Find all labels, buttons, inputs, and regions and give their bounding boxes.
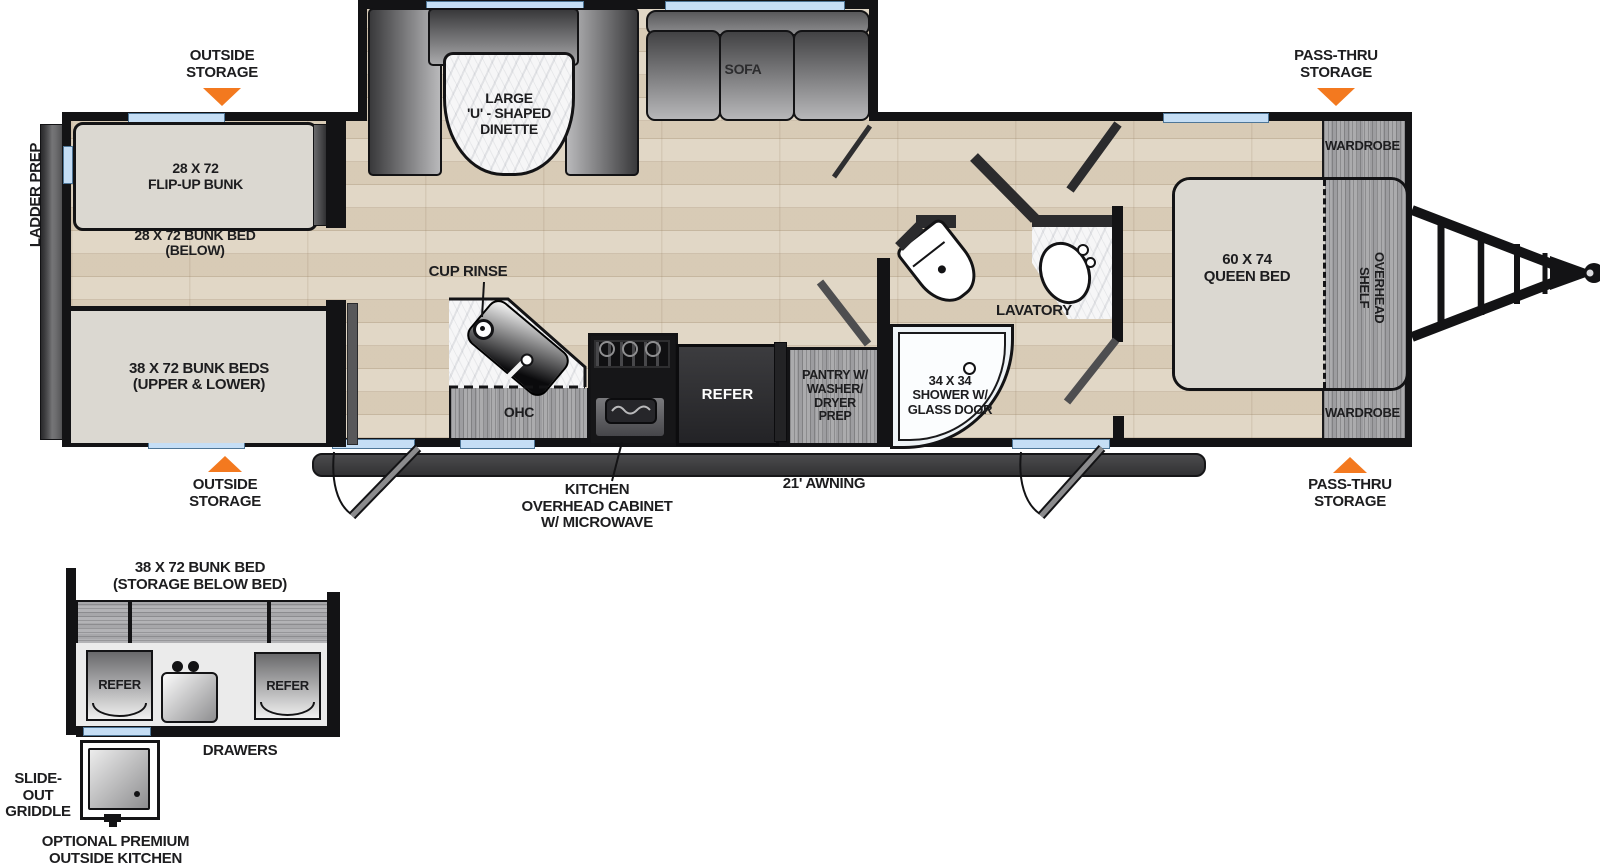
awning-label: 21' AWNING xyxy=(754,476,894,494)
outside-refer-right-label: REFER xyxy=(266,679,309,693)
storage-arrow-icon xyxy=(203,88,241,106)
toilet-seat-line xyxy=(912,241,945,267)
ladder-prep-label: LADDER PREP xyxy=(28,115,48,275)
pantry: PANTRY W/ WASHER/ DRYER PREP xyxy=(787,347,883,446)
awning-bar xyxy=(312,453,1206,477)
flip-up-bunk-label: 28 X 72 FLIP-UP BUNK xyxy=(148,161,243,192)
inset-wall xyxy=(327,592,340,737)
outside-refer-left: REFER xyxy=(86,650,153,721)
outside-refer-right: REFER xyxy=(254,652,321,720)
pass-thru-top-label: PASS-THRU STORAGE xyxy=(1276,48,1396,84)
wall xyxy=(326,300,346,447)
shower-label: 34 X 34 SHOWER W/ GLASS DOOR xyxy=(893,374,1007,428)
queen-bed-label: 60 X 74 QUEEN BED xyxy=(1180,252,1314,290)
inset-bunk-strip xyxy=(76,600,331,647)
cup-rinse-fixture xyxy=(473,319,494,340)
inset-strip-divider xyxy=(128,600,132,643)
inset-strip-divider xyxy=(267,600,271,643)
flip-up-bunk: 28 X 72 FLIP-UP BUNK xyxy=(73,122,318,231)
outside-kitchen-title: 38 X 72 BUNK BED (STORAGE BELOW BED) xyxy=(100,560,300,596)
hitch-coupler-icon xyxy=(1587,270,1594,277)
pantry-label: PANTRY W/ WASHER/ DRYER PREP xyxy=(802,369,868,424)
lavatory-label: LAVATORY xyxy=(972,303,1096,321)
griddle-label: SLIDE-OUT GRIDDLE xyxy=(0,771,76,807)
outside-faucet-dot xyxy=(188,661,199,672)
griddle-knob xyxy=(134,791,140,797)
wall xyxy=(1113,416,1124,442)
griddle xyxy=(88,748,150,810)
outside-storage-bottom-label: OUTSIDE STORAGE xyxy=(165,477,285,513)
window xyxy=(63,146,73,184)
kitchen-ohc-label: KITCHEN OVERHEAD CABINET W/ MICROWAVE xyxy=(517,482,677,534)
storage-arrow-icon xyxy=(208,456,242,472)
storage-arrow-icon xyxy=(1317,88,1355,106)
bunk-below-label: 28 X 72 BUNK BED (BELOW) xyxy=(95,228,295,264)
refer-curve xyxy=(92,703,147,717)
faucet-dot xyxy=(1085,257,1096,268)
cup-rinse-label: CUP RINSE xyxy=(408,264,528,282)
refer-curve xyxy=(260,702,315,716)
stove xyxy=(588,333,678,446)
cabinet-divider xyxy=(774,342,787,442)
wall xyxy=(326,112,346,228)
bunk-beds-room: 38 X 72 BUNK BEDS (UPPER & LOWER) xyxy=(71,306,327,443)
hitch-coupler-icon xyxy=(1584,263,1600,283)
wall xyxy=(877,258,890,444)
wardrobe-bottom-label: WARDROBE xyxy=(1322,406,1403,422)
bed-shelf-divider xyxy=(1323,180,1326,388)
window xyxy=(1163,113,1269,123)
outside-refer-left-label: REFER xyxy=(98,678,141,692)
griddle-tab xyxy=(109,822,117,827)
outside-faucet-dot xyxy=(172,661,183,672)
wall xyxy=(1032,215,1120,227)
sofa-label: SOFA xyxy=(698,62,788,80)
bunk-beds-label: 38 X 72 BUNK BEDS (UPPER & LOWER) xyxy=(129,361,269,394)
pass-thru-bottom-label: PASS-THRU STORAGE xyxy=(1290,477,1410,513)
inset-wall xyxy=(66,568,76,735)
refrigerator: REFER xyxy=(676,344,779,446)
sofa-cushion xyxy=(793,30,870,121)
ohc-label: OHC xyxy=(504,405,534,420)
inset-window xyxy=(83,727,151,736)
toilet-flush xyxy=(936,264,947,275)
window xyxy=(460,439,535,449)
wardrobe-top-label: WARDROBE xyxy=(1322,139,1403,155)
storage-arrow-icon xyxy=(1333,457,1367,473)
dinette-label: LARGE 'U' - SHAPED DINETTE xyxy=(467,91,551,137)
oven-front xyxy=(596,398,664,436)
refer-label: REFER xyxy=(702,387,754,404)
hitch-frame xyxy=(1412,281,1557,337)
drawers-label: DRAWERS xyxy=(198,743,282,760)
burner-grate xyxy=(594,340,670,368)
overhead-shelf-label: OVERHEAD SHELF xyxy=(1338,228,1386,348)
outside-kitchen-caption: OPTIONAL PREMIUM OUTSIDE KITCHEN xyxy=(38,834,193,864)
hitch-tip xyxy=(1550,256,1597,290)
window xyxy=(1012,439,1110,449)
wall xyxy=(1112,206,1123,342)
faucet-dot xyxy=(1077,244,1089,256)
outside-sink xyxy=(161,672,218,723)
hitch-frame xyxy=(1412,210,1557,266)
pocket-door xyxy=(347,303,358,445)
griddle-tab xyxy=(104,814,121,822)
outside-storage-top-label: OUTSIDE STORAGE xyxy=(162,48,282,84)
kitchen-ohc: OHC xyxy=(449,388,589,440)
floorplan: LADDER PREP 28 X 72 FLIP-UP BUNK 28 X 72… xyxy=(0,0,1600,864)
